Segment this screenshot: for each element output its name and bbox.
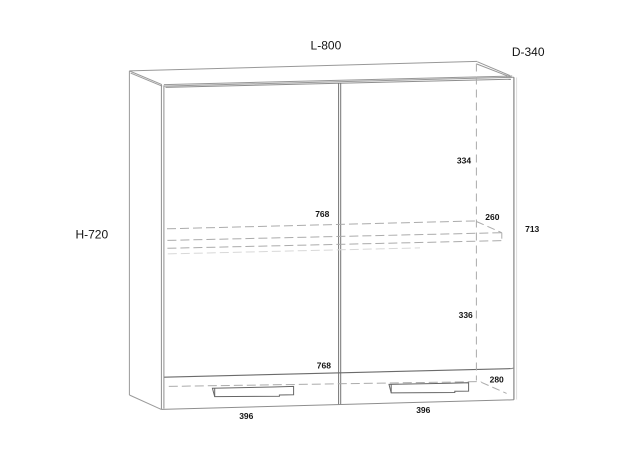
svg-text:334: 334 [457,155,471,165]
svg-text:336: 336 [459,310,473,320]
svg-text:768: 768 [317,360,331,370]
svg-text:713: 713 [525,224,539,234]
svg-text:768: 768 [315,209,329,219]
svg-text:260: 260 [485,212,499,222]
svg-text:D-340: D-340 [512,45,545,59]
svg-text:396: 396 [416,405,430,415]
svg-text:396: 396 [239,411,253,421]
svg-text:L-800: L-800 [311,38,342,52]
svg-text:280: 280 [490,374,504,384]
svg-text:H-720: H-720 [75,228,108,242]
